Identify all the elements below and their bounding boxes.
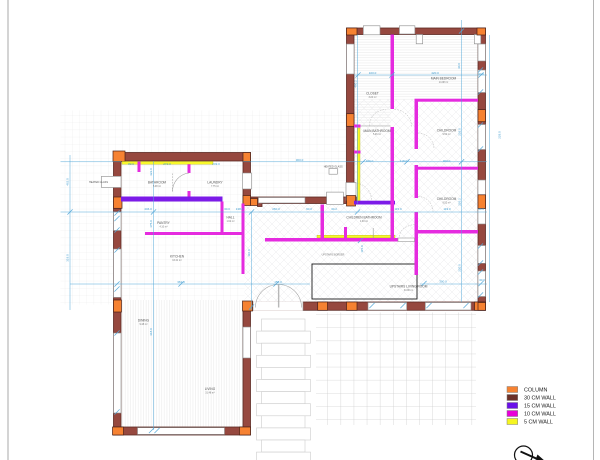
svg-text:318.0: 318.0: [149, 328, 153, 336]
svg-text:PANTRY: PANTRY: [157, 221, 171, 225]
svg-text:300.0: 300.0: [439, 280, 447, 284]
svg-text:30.0: 30.0: [457, 63, 461, 69]
svg-text:260.0: 260.0: [272, 207, 280, 211]
svg-text:462.0: 462.0: [66, 178, 70, 186]
svg-text:175.0: 175.0: [149, 220, 153, 228]
svg-text:110.0: 110.0: [247, 249, 251, 257]
svg-text:4.10 m²: 4.10 m²: [159, 225, 167, 228]
svg-text:DINING: DINING: [138, 319, 150, 323]
svg-text:272.0: 272.0: [163, 162, 171, 166]
svg-text:34.96 m²: 34.96 m²: [404, 289, 414, 292]
svg-text:118.0: 118.0: [400, 159, 408, 163]
svg-text:1.62 m²: 1.62 m²: [226, 220, 234, 223]
svg-text:300.0: 300.0: [296, 158, 304, 162]
svg-text:30.0: 30.0: [478, 207, 484, 211]
svg-text:CHILDROOM: CHILDROOM: [437, 129, 457, 133]
svg-text:30.0: 30.0: [478, 72, 484, 76]
svg-text:150.0: 150.0: [274, 280, 282, 284]
svg-text:30.2: 30.2: [331, 207, 337, 211]
svg-text:LIVING: LIVING: [205, 387, 216, 391]
svg-text:7.75 m²: 7.75 m²: [211, 185, 219, 188]
svg-text:362.0: 362.0: [177, 280, 185, 284]
svg-text:226.2: 226.2: [458, 198, 462, 206]
svg-text:5.26 m²: 5.26 m²: [373, 133, 381, 136]
svg-text:115.0: 115.0: [394, 207, 402, 211]
svg-text:138.0: 138.0: [236, 207, 244, 211]
svg-text:MAIN BATHROOM: MAIN BATHROOM: [363, 129, 390, 133]
svg-text:10 CM WALL: 10 CM WALL: [524, 412, 556, 418]
svg-text:HEATED GLASS: HEATED GLASS: [89, 181, 108, 184]
svg-text:80.0: 80.0: [128, 162, 134, 166]
svg-text:249.0: 249.0: [212, 162, 220, 166]
svg-text:UPSTAIRS LIVING ROOM: UPSTAIRS LIVING ROOM: [390, 285, 428, 289]
svg-text:318.0: 318.0: [66, 254, 70, 262]
svg-text:15 CM WALL: 15 CM WALL: [524, 404, 556, 410]
svg-text:119.0: 119.0: [443, 207, 451, 211]
svg-text:100.0: 100.0: [369, 71, 377, 75]
svg-text:460.2: 460.2: [354, 80, 358, 88]
svg-text:166.0: 166.0: [366, 159, 374, 163]
svg-text:30.0: 30.0: [479, 278, 485, 282]
svg-text:BATHROOM: BATHROOM: [148, 180, 167, 184]
svg-text:14.08 m²: 14.08 m²: [439, 81, 449, 84]
svg-text:9.48 m²: 9.48 m²: [139, 323, 147, 326]
svg-text:UPSTAIRS BORDER: UPSTAIRS BORDER: [322, 254, 345, 257]
svg-text:CLOSET: CLOSET: [366, 92, 379, 96]
svg-text:KITCHEN: KITCHEN: [170, 255, 185, 259]
svg-text:220.0: 220.0: [458, 264, 462, 272]
svg-text:COLUMN: COLUMN: [524, 388, 547, 394]
svg-text:5 CM WALL: 5 CM WALL: [524, 420, 553, 426]
svg-text:228.0: 228.0: [498, 131, 502, 139]
svg-text:300.0: 300.0: [443, 159, 451, 163]
svg-text:9.52 m²: 9.52 m²: [442, 133, 450, 136]
svg-text:31.48 m²: 31.48 m²: [205, 391, 215, 394]
svg-text:16.21 m²: 16.21 m²: [172, 259, 182, 262]
svg-text:3.24 m²: 3.24 m²: [368, 96, 376, 99]
svg-text:CHILDREN BATHROOM: CHILDREN BATHROOM: [346, 216, 382, 220]
svg-text:LAUNDRY: LAUNDRY: [207, 180, 223, 184]
svg-text:5.08 m²: 5.08 m²: [153, 185, 161, 188]
svg-text:30.0: 30.0: [224, 207, 230, 211]
svg-text:115.0: 115.0: [360, 245, 364, 253]
svg-text:9.52 m²: 9.52 m²: [442, 201, 450, 204]
svg-text:CHILDROOM: CHILDROOM: [437, 197, 457, 201]
svg-text:446.0: 446.0: [144, 207, 152, 211]
svg-text:420.0: 420.0: [431, 71, 439, 75]
svg-text:HALL: HALL: [227, 215, 235, 219]
svg-text:322.0: 322.0: [149, 168, 153, 176]
svg-text:4.30 m²: 4.30 m²: [360, 220, 368, 223]
svg-text:MAIN BEDROOM: MAIN BEDROOM: [431, 77, 457, 81]
svg-text:90.0: 90.0: [306, 207, 312, 211]
svg-text:30 CM WALL: 30 CM WALL: [524, 396, 556, 402]
svg-text:226.0: 226.0: [458, 128, 462, 136]
